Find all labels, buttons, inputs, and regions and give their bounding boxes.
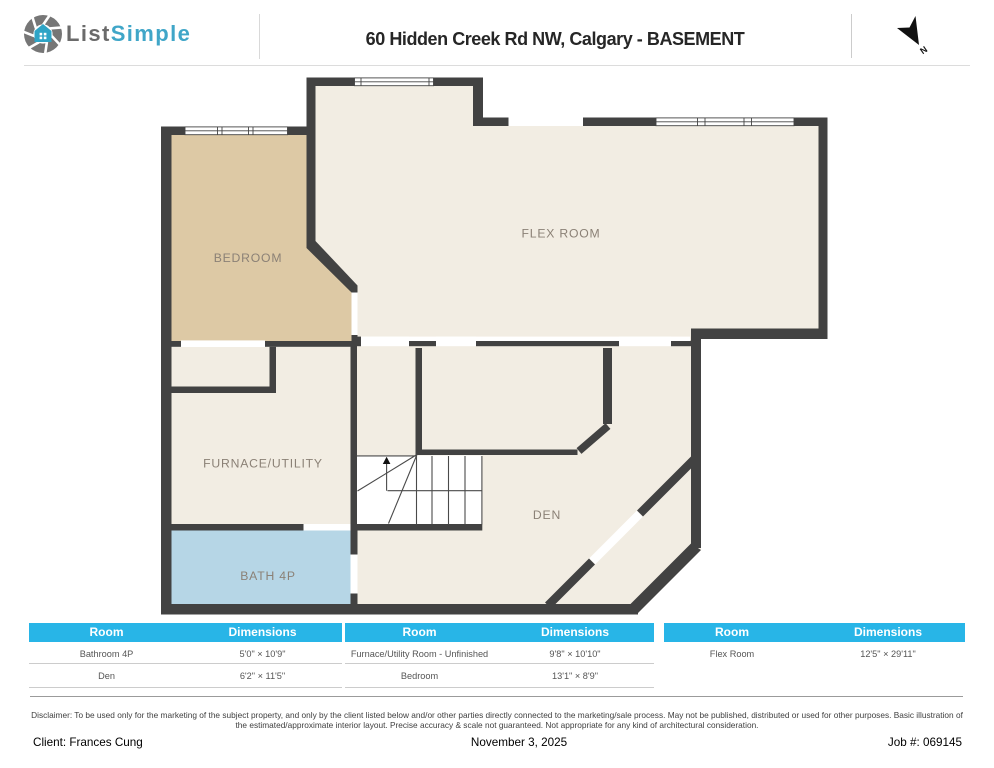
svg-text:FURNACE/UTILITY: FURNACE/UTILITY: [203, 457, 323, 471]
svg-text:BATH 4P: BATH 4P: [240, 569, 296, 583]
svg-text:DEN: DEN: [533, 508, 561, 522]
svg-text:BEDROOM: BEDROOM: [214, 251, 283, 265]
svg-text:FLEX ROOM: FLEX ROOM: [522, 227, 601, 241]
